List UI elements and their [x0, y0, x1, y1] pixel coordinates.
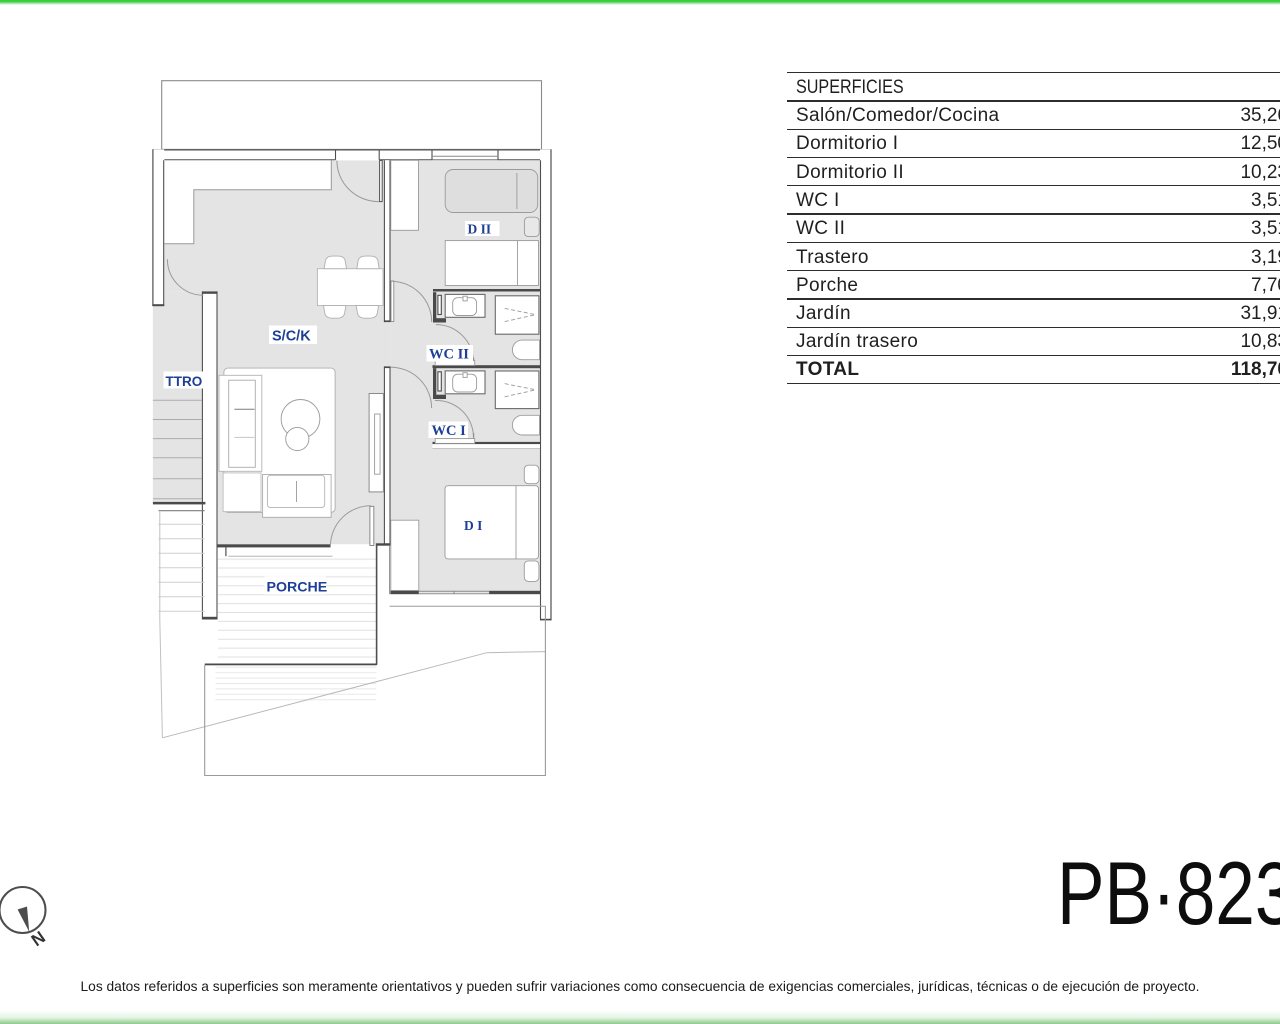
svg-text:PORCHE: PORCHE [267, 580, 328, 596]
svg-text:D II: D II [468, 222, 492, 237]
svg-text:WC I: WC I [432, 423, 467, 439]
svg-text:WC II: WC II [429, 347, 469, 363]
svg-text:TTRO: TTRO [166, 374, 203, 389]
svg-text:S/C/K: S/C/K [272, 329, 311, 345]
svg-text:D I: D I [464, 518, 482, 533]
